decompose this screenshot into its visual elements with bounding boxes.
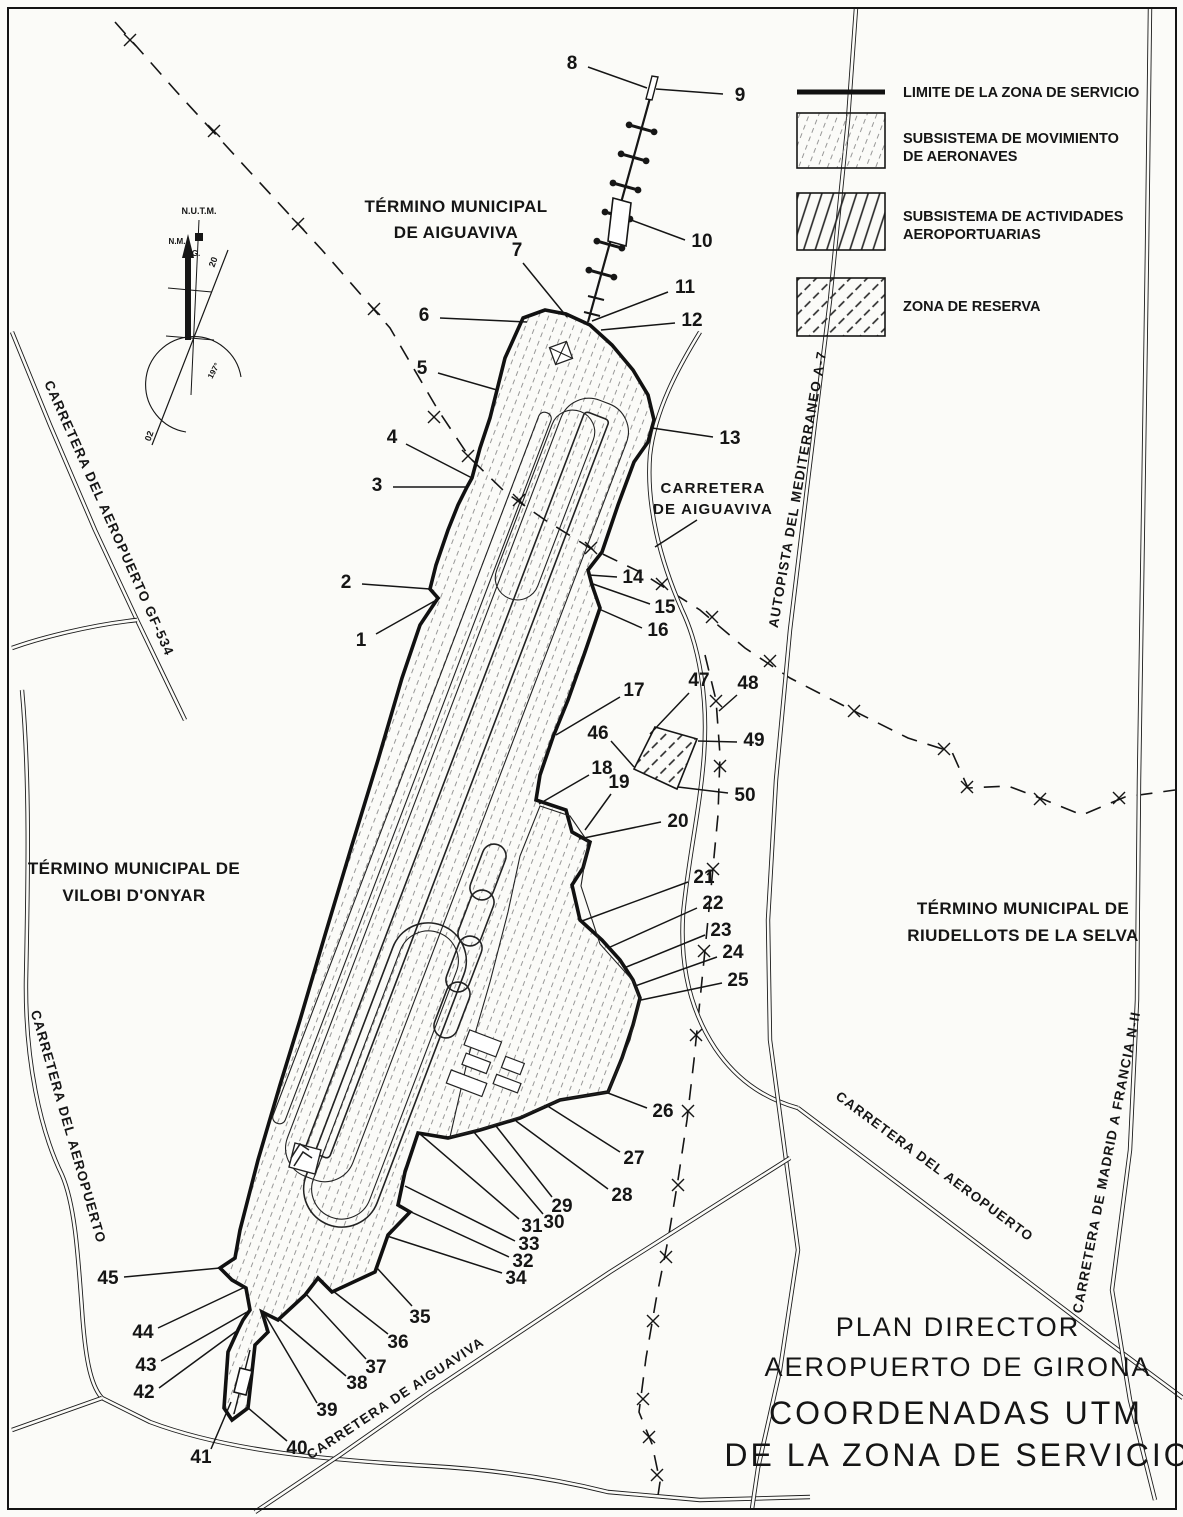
- map-title-line3: COORDENADAS UTM: [769, 1395, 1143, 1431]
- legend-limit-label: LIMITE DE LA ZONA DE SERVICIO: [903, 85, 1139, 101]
- callout-number-47: 47: [688, 670, 709, 691]
- callout-number-14: 14: [622, 567, 644, 588]
- callout-number-17: 17: [623, 680, 644, 701]
- plan-director-map-page: 1234567891011121314151617181920212223242…: [0, 0, 1183, 1517]
- callout-number-35: 35: [409, 1307, 431, 1328]
- callout-number-27: 27: [623, 1148, 644, 1169]
- callout-number-30: 30: [543, 1212, 564, 1233]
- legend-activities-label: SUBSISTEMA DE ACTIVIDADES: [903, 209, 1124, 225]
- callout-number-42: 42: [133, 1382, 154, 1403]
- callout-number-9: 9: [735, 85, 746, 106]
- callout-number-22: 22: [702, 893, 723, 914]
- map-title-line4: DE LA ZONA DE SERVICIO: [724, 1437, 1183, 1473]
- svg-text:VILOBI D'ONYAR: VILOBI D'ONYAR: [62, 886, 205, 905]
- svg-text:DE AERONAVES: DE AERONAVES: [903, 149, 1018, 165]
- callout-number-49: 49: [743, 730, 764, 751]
- callout-number-16: 16: [647, 620, 668, 641]
- legend-movement-label: SUBSISTEMA DE MOVIMIENTO: [903, 131, 1119, 147]
- callout-number-41: 41: [190, 1447, 212, 1468]
- callout-number-50: 50: [734, 785, 755, 806]
- compass-nm-label: N.M.: [169, 237, 186, 246]
- callout-number-39: 39: [316, 1400, 337, 1421]
- callout-number-15: 15: [654, 597, 676, 618]
- callout-number-1: 1: [356, 630, 367, 651]
- callout-number-23: 23: [710, 920, 731, 941]
- svg-text:DE AIGUAVIVA: DE AIGUAVIVA: [653, 501, 773, 518]
- callout-number-46: 46: [587, 723, 608, 744]
- callout-number-28: 28: [611, 1185, 632, 1206]
- label-riudellots: TÉRMINO MUNICIPAL DE: [917, 899, 1129, 918]
- callout-number-44: 44: [132, 1322, 154, 1343]
- callout-number-36: 36: [387, 1332, 408, 1353]
- callout-number-11: 11: [675, 277, 696, 298]
- callout-number-4: 4: [387, 427, 398, 448]
- callout-number-24: 24: [722, 942, 744, 963]
- callout-number-12: 12: [681, 310, 702, 331]
- label-road-aiguaviva-mid: CARRETERA: [661, 480, 766, 497]
- callout-number-7: 7: [512, 240, 523, 261]
- callout-number-33: 33: [518, 1234, 539, 1255]
- legend-movement-swatch: [797, 113, 885, 168]
- callout-number-48: 48: [737, 673, 758, 694]
- airport-master-plan-map: 1234567891011121314151617181920212223242…: [0, 0, 1183, 1517]
- callout-number-26: 26: [652, 1101, 673, 1122]
- svg-text:RIUDELLOTS DE LA SELVA: RIUDELLOTS DE LA SELVA: [907, 926, 1138, 945]
- callout-leader-49: [698, 741, 737, 742]
- legend-reserve-swatch: [797, 278, 885, 336]
- svg-text:DE AIGUAVIVA: DE AIGUAVIVA: [394, 223, 518, 242]
- compass-utm-label: N.U.T.M.: [182, 206, 217, 216]
- map-title-line1: PLAN DIRECTOR: [836, 1312, 1081, 1342]
- callout-number-3: 3: [372, 475, 383, 496]
- callout-number-20: 20: [667, 811, 688, 832]
- legend-activities-swatch: [797, 193, 885, 250]
- callout-number-38: 38: [346, 1373, 367, 1394]
- callout-number-37: 37: [365, 1357, 386, 1378]
- callout-number-2: 2: [341, 572, 352, 593]
- label-aiguaviva: TÉRMINO MUNICIPAL: [364, 197, 547, 216]
- callout-number-6: 6: [419, 305, 430, 326]
- callout-number-19: 19: [608, 772, 629, 793]
- callout-number-34: 34: [505, 1268, 527, 1289]
- map-title-line2: AEROPUERTO DE GIRONA: [764, 1352, 1151, 1382]
- callout-number-45: 45: [97, 1268, 119, 1289]
- callout-number-43: 43: [135, 1355, 156, 1376]
- label-vilobi: TÉRMINO MUNICIPAL DE: [28, 859, 240, 878]
- callout-number-13: 13: [719, 428, 740, 449]
- callout-number-10: 10: [691, 231, 712, 252]
- callout-number-21: 21: [693, 867, 715, 888]
- legend-reserve-label: ZONA DE RESERVA: [903, 299, 1041, 315]
- svg-text:AEROPORTUARIAS: AEROPORTUARIAS: [903, 227, 1041, 243]
- callout-number-8: 8: [567, 53, 578, 74]
- callout-number-5: 5: [417, 358, 428, 379]
- callout-number-25: 25: [727, 970, 749, 991]
